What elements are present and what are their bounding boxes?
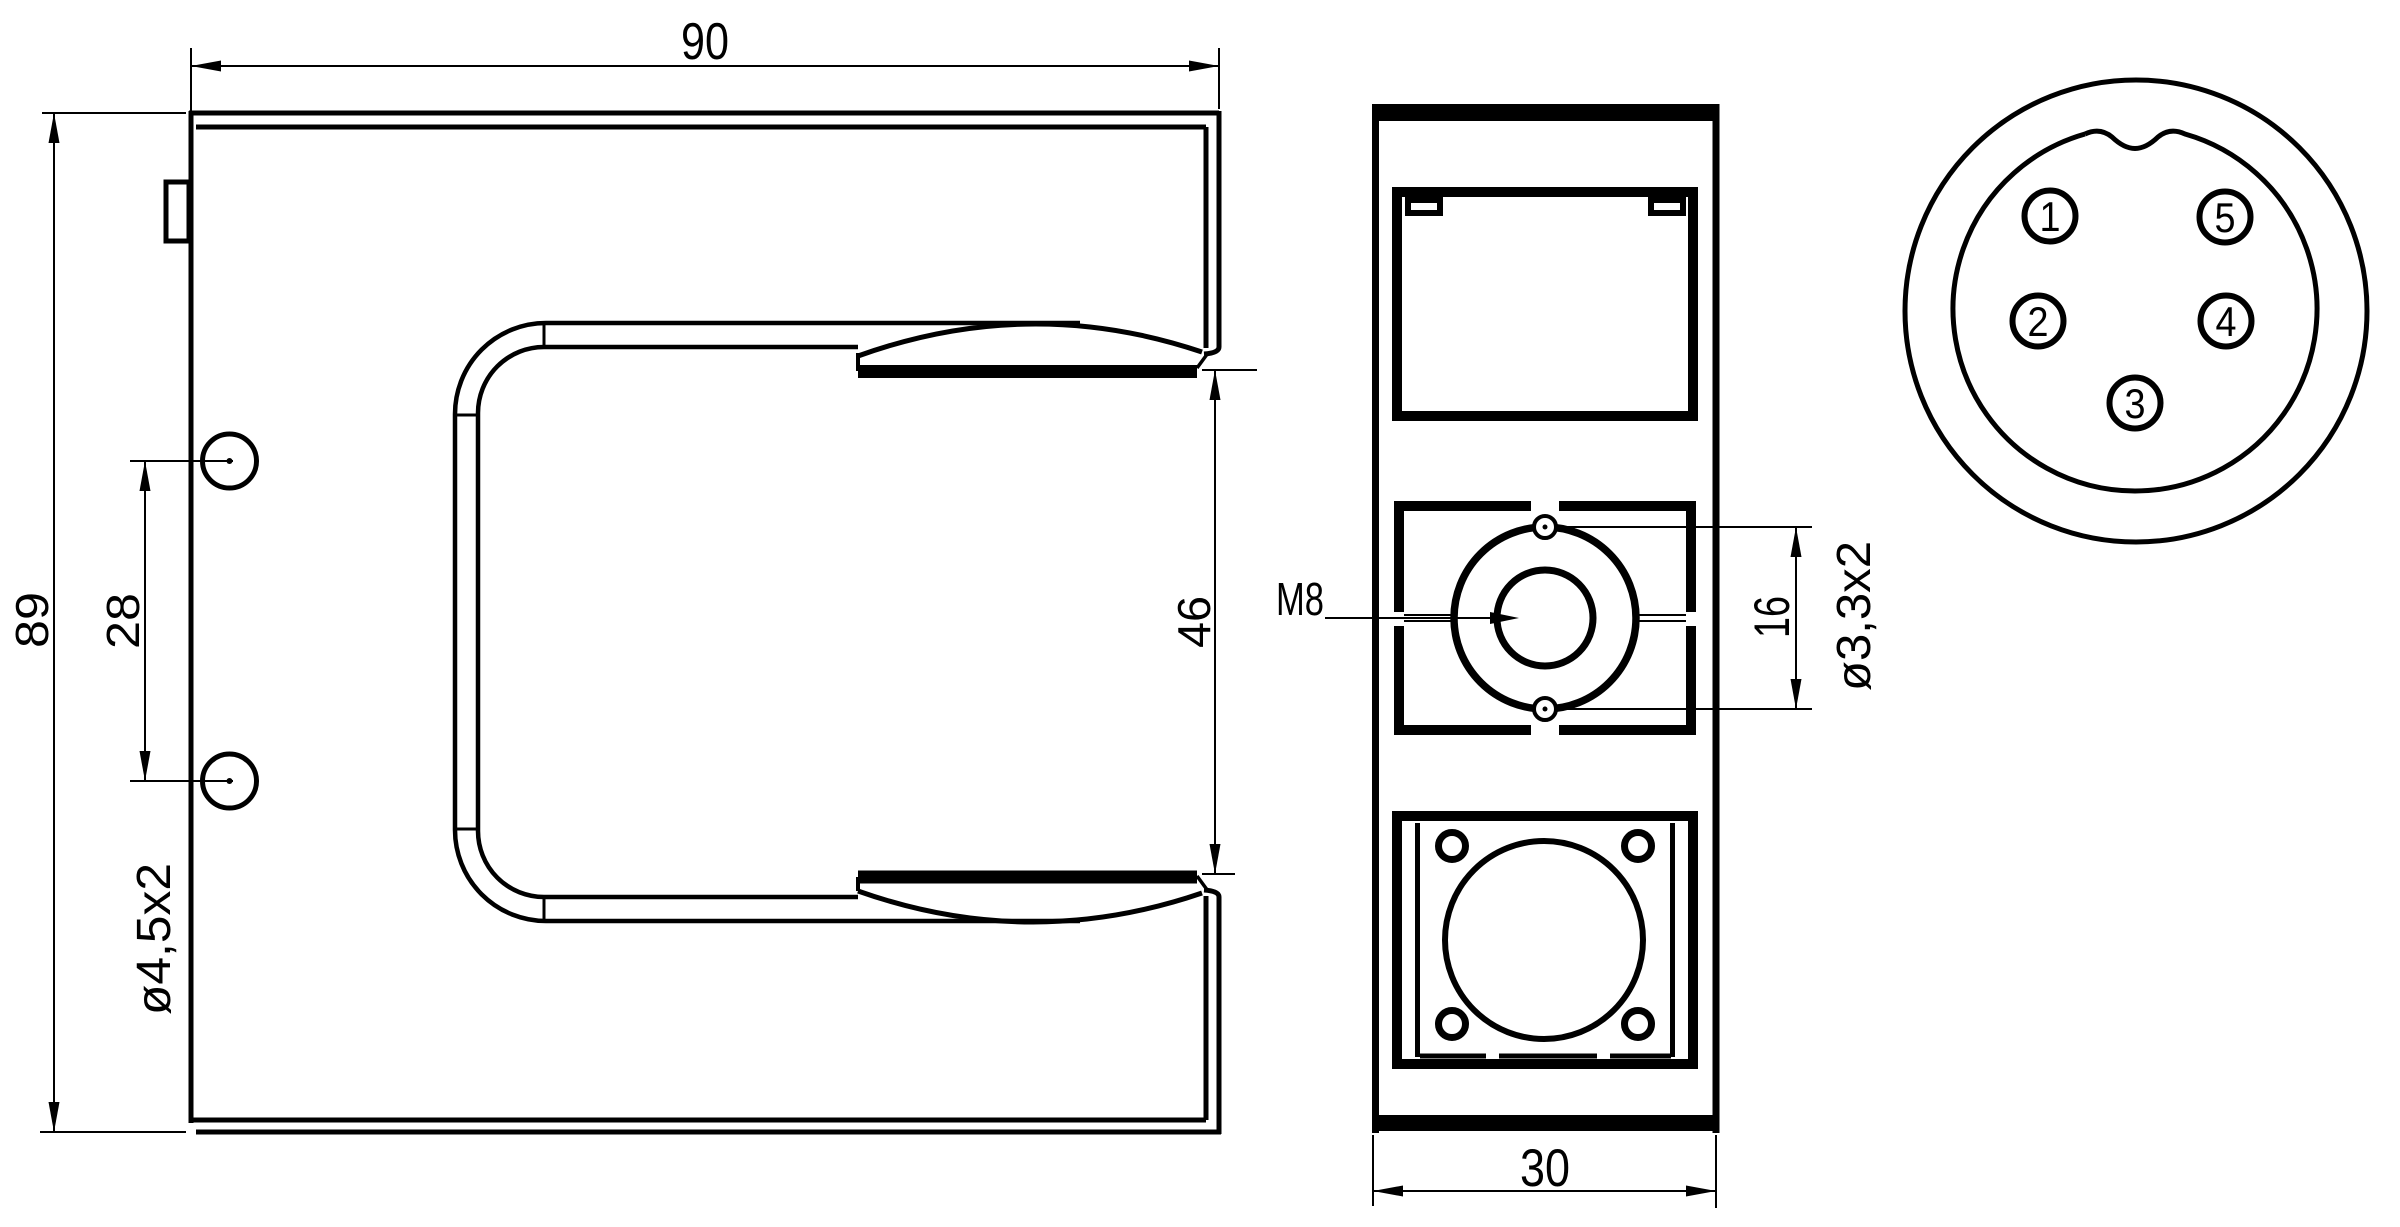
svg-text:46: 46 [1168, 596, 1220, 648]
svg-text:M8: M8 [1276, 573, 1324, 625]
svg-text:30: 30 [1520, 1139, 1570, 1198]
svg-text:2: 2 [2028, 298, 2049, 345]
svg-text:90: 90 [681, 13, 729, 71]
svg-text:89: 89 [6, 592, 58, 648]
svg-text:ø3,3x2: ø3,3x2 [1828, 541, 1881, 691]
svg-text:4: 4 [2216, 298, 2237, 345]
svg-text:1: 1 [2040, 193, 2061, 240]
svg-text:ø4,5x2: ø4,5x2 [128, 863, 181, 1015]
svg-text:16: 16 [1744, 596, 1800, 638]
svg-text:3: 3 [2125, 380, 2146, 427]
svg-text:28: 28 [97, 593, 149, 649]
svg-text:5: 5 [2215, 194, 2236, 241]
